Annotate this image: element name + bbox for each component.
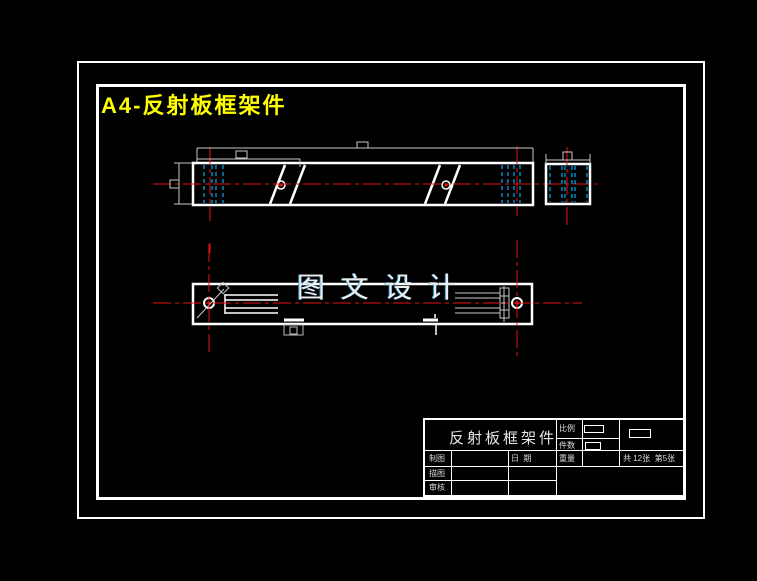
quantity-value-box — [585, 442, 601, 450]
top-view — [153, 142, 598, 253]
cad-screenshot: { "drawing": { "sheet_title": "A4-反射板框架件… — [0, 0, 757, 581]
date-label: 日 期 — [511, 454, 531, 463]
top-view-dimensions — [170, 142, 533, 204]
sheet-count: 共 12张 第5张 — [623, 454, 675, 463]
drafted-label: 制图 — [429, 454, 445, 463]
right-slot-detail — [455, 286, 509, 322]
grid-line — [556, 438, 619, 439]
side-view — [546, 147, 590, 227]
quantity-label: 件数 — [559, 441, 575, 450]
grid-line — [619, 420, 620, 467]
grid-line — [508, 450, 509, 495]
dim-text-box — [236, 151, 247, 158]
traced-label: 描图 — [429, 469, 445, 478]
dim-text-box — [357, 142, 368, 148]
watermark-text: 图 文 设 计 — [297, 266, 460, 306]
grid-line — [425, 450, 684, 451]
left-slot-detail — [225, 294, 278, 314]
scale-value-box — [584, 425, 604, 433]
weight-label: 重量 — [559, 454, 575, 463]
material-value-box — [629, 429, 651, 438]
part-name: 反射板框架件 — [449, 427, 557, 448]
grid-line — [425, 480, 556, 481]
title-block: 反射板框架件 比例 件数 重量 制图 日 期 共 12张 第5张 描图 审核 — [423, 418, 686, 497]
weld-symbol-left — [284, 320, 304, 335]
grid-line — [451, 450, 452, 495]
checked-label: 审核 — [429, 483, 445, 492]
grid-line — [425, 466, 684, 467]
scale-label: 比例 — [559, 424, 575, 433]
grid-line — [582, 420, 583, 467]
